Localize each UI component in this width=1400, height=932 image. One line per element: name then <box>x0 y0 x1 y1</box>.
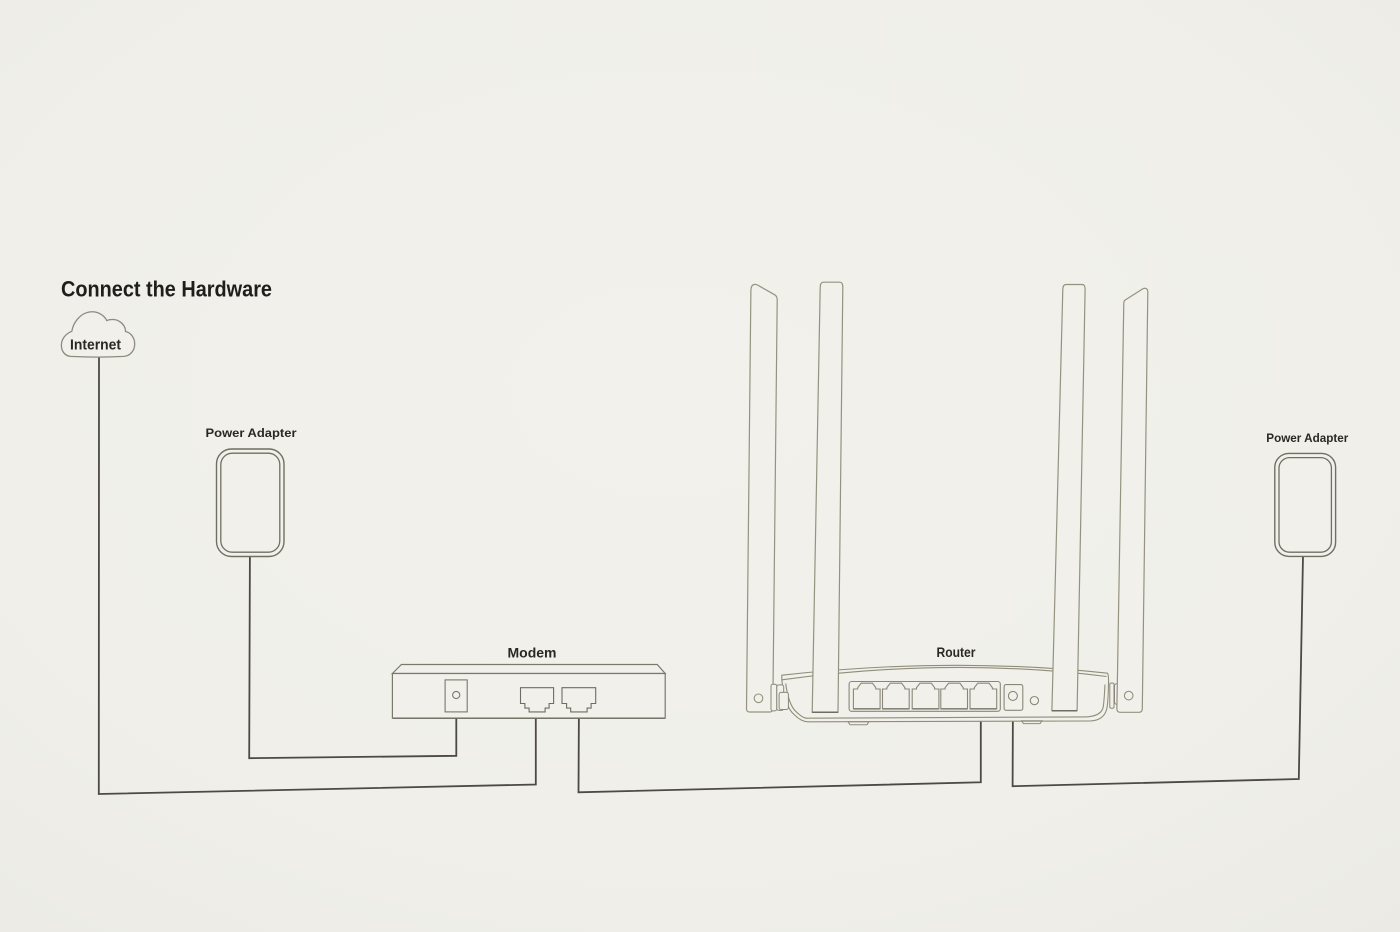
svg-text:Connect the Hardware: Connect the Hardware <box>61 277 272 302</box>
svg-text:Power Adapter: Power Adapter <box>206 426 297 440</box>
svg-text:Internet: Internet <box>70 337 121 354</box>
svg-text:Power Adapter: Power Adapter <box>1266 431 1348 445</box>
svg-text:Router: Router <box>937 645 977 660</box>
svg-text:Modem: Modem <box>508 646 557 661</box>
